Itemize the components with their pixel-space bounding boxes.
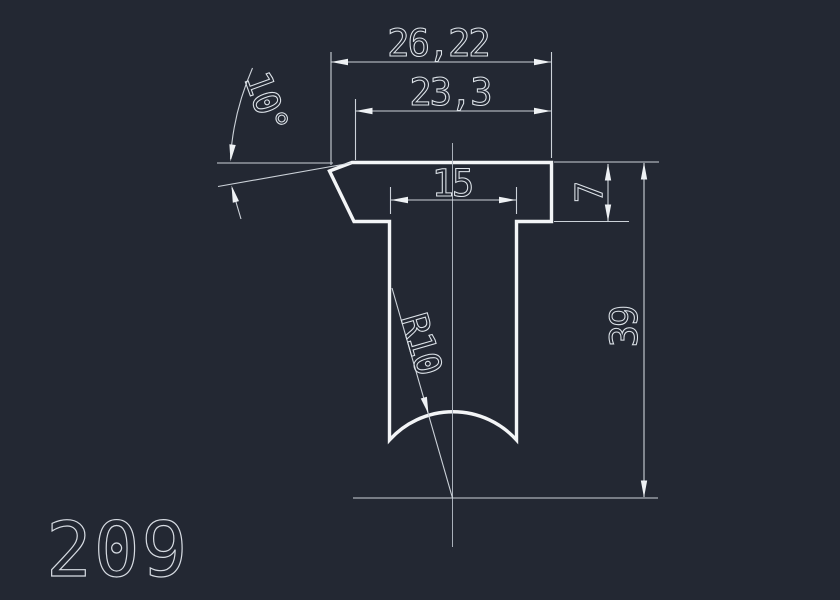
arrowhead-left-icon [391,197,408,203]
dim-upper-face-width: 23,3 [356,71,552,160]
dim-bottom-radius-value: R10 [392,308,450,378]
dim-chamfer-angle-value: 10° [235,66,296,138]
arrowhead-down-icon [641,481,647,498]
dim-stem-width: 15 [391,162,517,214]
arrowhead-right-icon [499,197,516,203]
arrowhead-left-icon [331,59,348,65]
arrowhead-up-icon [641,163,647,180]
dim-flange-thickness-value: 7 [568,183,611,203]
arrowhead-right-icon [534,59,551,65]
arrowhead-radius-icon [421,397,432,415]
arrowhead-right-icon [534,108,551,114]
dim-bottom-radius: R10 [392,288,453,498]
dim-overall-height-value: 39 [603,307,646,348]
arrowhead-arc-down-icon [227,144,235,162]
part-number-label: 209 [46,505,189,594]
dim-upper-face-width-value: 23,3 [409,71,490,114]
dim-stem-width-value: 15 [432,162,473,205]
technical-drawing: 26,22 23,3 15 7 [0,0,840,600]
arrowhead-down-icon [605,205,611,222]
cad-drawing-canvas: 26,22 23,3 15 7 [0,0,840,600]
dim-overall-width-value: 26,22 [387,22,488,65]
arrowhead-left-icon [356,108,373,114]
arrowhead-up-icon [605,164,611,181]
arrowhead-arc-up-icon [228,185,239,203]
